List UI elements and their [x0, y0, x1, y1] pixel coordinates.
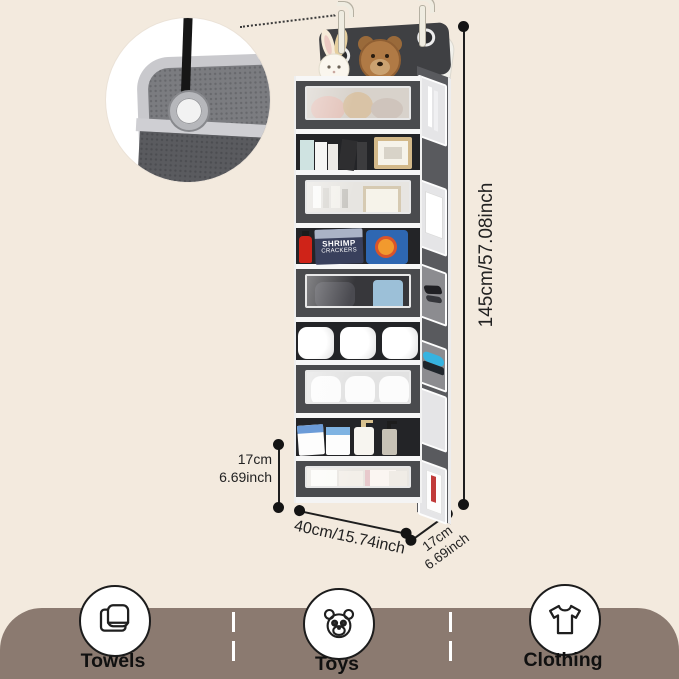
shelf-books — [296, 134, 420, 170]
fabric-lower — [136, 131, 270, 182]
window-pocket-bottles — [296, 461, 420, 497]
trim — [296, 497, 420, 503]
picture-frame — [374, 137, 412, 169]
category-label-toys: Toys — [269, 653, 405, 676]
category-circle-toys — [303, 588, 375, 660]
divider-dashes — [232, 612, 235, 661]
over-door-organizer: SHRIMP CRACKERS — [286, 6, 452, 540]
over-door-hook-left — [338, 10, 345, 54]
grommet-detail-callout — [106, 18, 270, 182]
pocket-height-inch: 6.69inch — [198, 469, 272, 487]
dimension-dot — [293, 504, 306, 517]
height-dimension-line — [463, 27, 465, 505]
towel-roll — [340, 327, 376, 359]
product-image: SHRIMP CRACKERS — [0, 0, 679, 679]
side-pocket-papers — [418, 178, 447, 257]
dimension-dot — [458, 21, 469, 32]
detergent-box — [297, 424, 325, 456]
window-pocket-books — [296, 175, 420, 223]
tshirt-icon — [544, 599, 586, 641]
side-pocket-glasses — [418, 262, 447, 327]
side-pocket-bottle — [418, 458, 447, 525]
divider-dashes — [449, 612, 452, 661]
soap-dispenser — [382, 429, 397, 455]
height-dimension-label: 145cm/57.08inch — [476, 105, 498, 405]
category-label-clothing: Clothing — [495, 649, 631, 672]
towel-roll — [298, 327, 334, 359]
pocket-height-dimension-label: 17cm 6.69inch — [198, 451, 272, 486]
pocket-height-dimension-line — [278, 445, 280, 508]
shelf-toiletries — [296, 418, 420, 456]
side-pockets — [417, 66, 451, 524]
window-pocket-plush — [296, 81, 420, 129]
detergent-box — [326, 427, 350, 455]
front-pockets: SHRIMP CRACKERS — [294, 76, 422, 503]
window-pocket-clothes — [296, 269, 420, 317]
metal-grommet — [170, 92, 208, 130]
towel-icon — [94, 600, 136, 642]
category-label-towels: Towels — [45, 650, 181, 673]
dimension-dot — [458, 499, 469, 510]
category-circle-clothing — [529, 584, 601, 656]
towel-roll — [382, 327, 418, 359]
shelf-snacks: SHRIMP CRACKERS — [296, 228, 420, 264]
shelf-towels — [296, 322, 420, 360]
over-door-hook-right — [419, 5, 426, 47]
pocket-height-cm: 17cm — [198, 451, 272, 469]
chips-bag — [366, 230, 408, 264]
window-pocket-towels — [296, 365, 420, 413]
category-circle-towels — [79, 585, 151, 657]
dimension-dot — [273, 439, 284, 450]
teddy-bear-icon — [318, 603, 360, 645]
snack-bag-label2: CRACKERS — [315, 247, 363, 255]
pump-bottle — [354, 427, 374, 455]
ketchup-bottle — [299, 236, 312, 263]
snack-bag: SHRIMP CRACKERS — [314, 228, 363, 265]
dimension-dot — [273, 502, 284, 513]
side-pocket-sheets — [418, 386, 447, 453]
side-pocket-brush — [418, 338, 447, 393]
